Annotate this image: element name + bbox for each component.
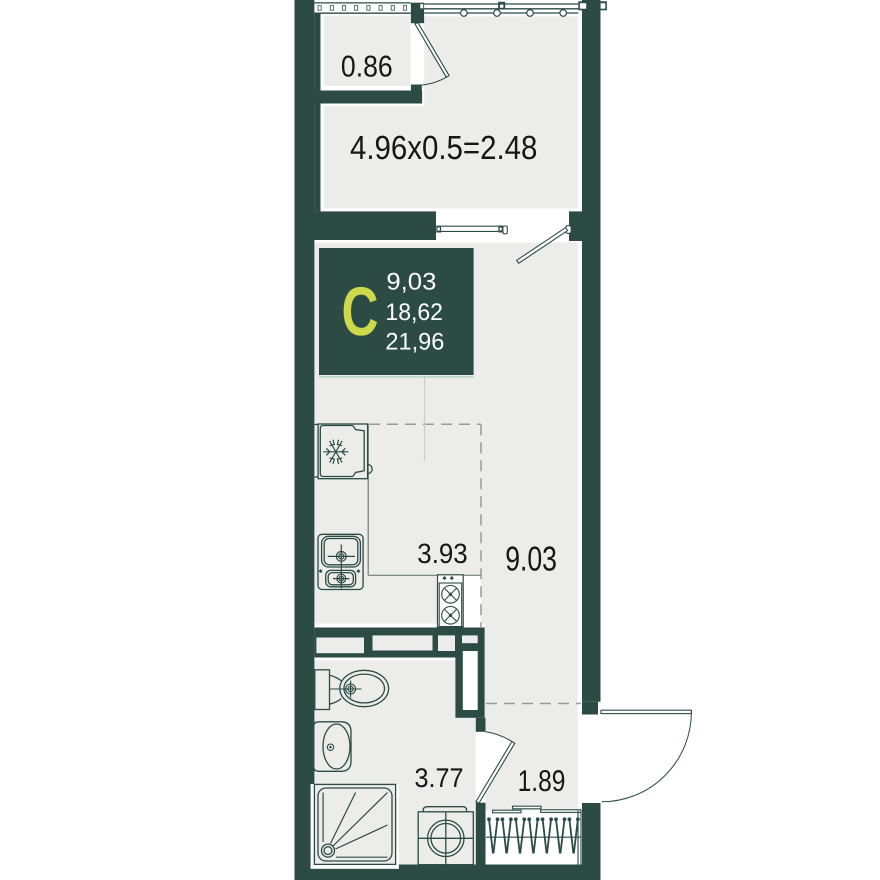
svg-text:9.03: 9.03 <box>505 541 557 579</box>
svg-text:0.86: 0.86 <box>341 50 393 83</box>
svg-text:1.89: 1.89 <box>518 765 566 798</box>
svg-text:4.96x0.5=2.48: 4.96x0.5=2.48 <box>350 130 538 167</box>
svg-text:21,96: 21,96 <box>385 328 444 355</box>
svg-text:C: C <box>342 273 379 350</box>
svg-text:3.93: 3.93 <box>417 538 467 569</box>
svg-text:3.77: 3.77 <box>414 763 463 793</box>
svg-text:18,62: 18,62 <box>385 299 443 326</box>
svg-text:9,03: 9,03 <box>386 268 436 295</box>
